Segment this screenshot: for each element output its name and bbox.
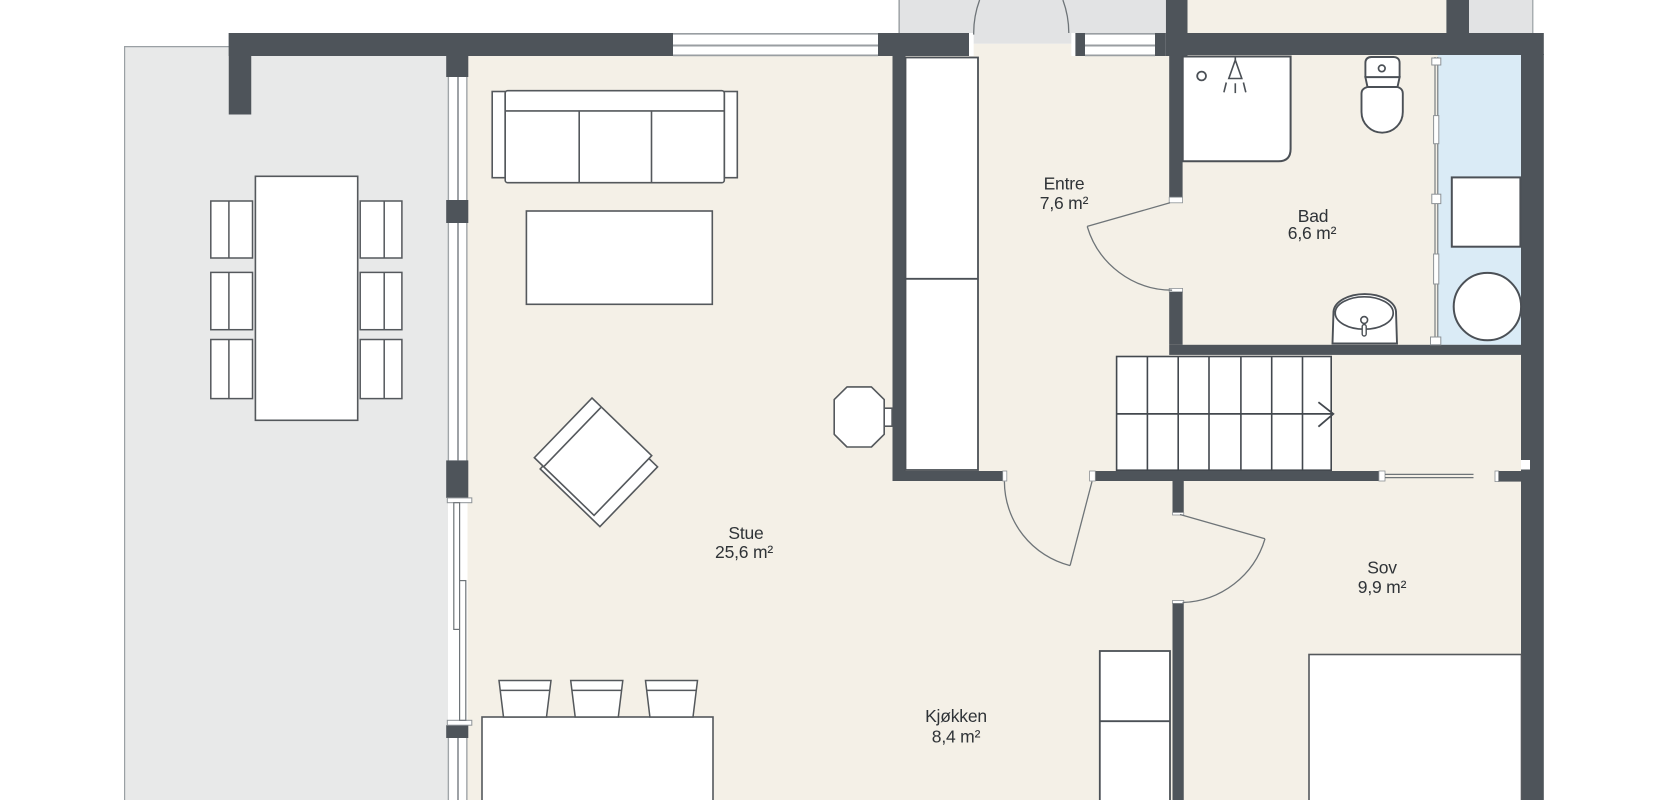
svg-text:Entre: Entre bbox=[1044, 173, 1085, 193]
svg-text:Sov: Sov bbox=[1367, 558, 1397, 578]
svg-text:6,6 m²: 6,6 m² bbox=[1288, 223, 1337, 243]
svg-text:8,4 m²: 8,4 m² bbox=[932, 727, 981, 747]
svg-text:Stue: Stue bbox=[728, 523, 763, 543]
svg-text:25,6 m²: 25,6 m² bbox=[715, 542, 773, 562]
svg-text:Kjøkken: Kjøkken bbox=[925, 706, 987, 726]
svg-text:7,6 m²: 7,6 m² bbox=[1040, 193, 1089, 213]
svg-text:9,9 m²: 9,9 m² bbox=[1358, 577, 1407, 597]
